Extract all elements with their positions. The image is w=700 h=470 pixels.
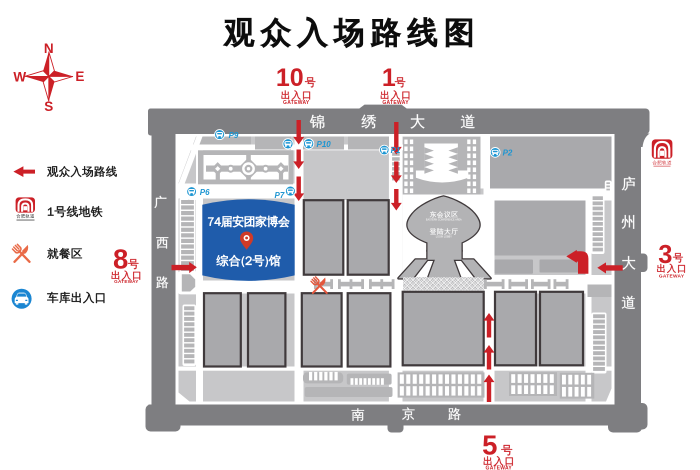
svg-text:GATEWAY: GATEWAY: [114, 279, 139, 284]
svg-text:EASTERN CONFERENCE AREA: EASTERN CONFERENCE AREA: [426, 218, 462, 221]
svg-text:GATEWAY: GATEWAY: [659, 273, 685, 279]
svg-text:P10: P10: [317, 140, 332, 149]
svg-text:P1: P1: [391, 146, 401, 155]
svg-text:W: W: [13, 70, 26, 85]
svg-text:P7: P7: [275, 191, 285, 200]
svg-text:GATEWAY: GATEWAY: [283, 100, 310, 106]
svg-text:E: E: [75, 69, 84, 84]
svg-text:8: 8: [113, 243, 128, 274]
svg-text:GATEWAY: GATEWAY: [486, 465, 513, 470]
svg-text:P9: P9: [229, 131, 239, 140]
svg-text:LOGIN LOBBY: LOGIN LOBBY: [436, 235, 452, 238]
svg-text:GATEWAY: GATEWAY: [382, 100, 409, 106]
svg-text:S: S: [44, 99, 53, 114]
svg-text:1: 1: [382, 64, 396, 92]
svg-text:10: 10: [276, 64, 304, 92]
svg-text:N: N: [44, 41, 54, 56]
svg-text:5: 5: [482, 429, 497, 460]
svg-text:P6: P6: [200, 188, 210, 197]
svg-text:P2: P2: [503, 149, 513, 158]
